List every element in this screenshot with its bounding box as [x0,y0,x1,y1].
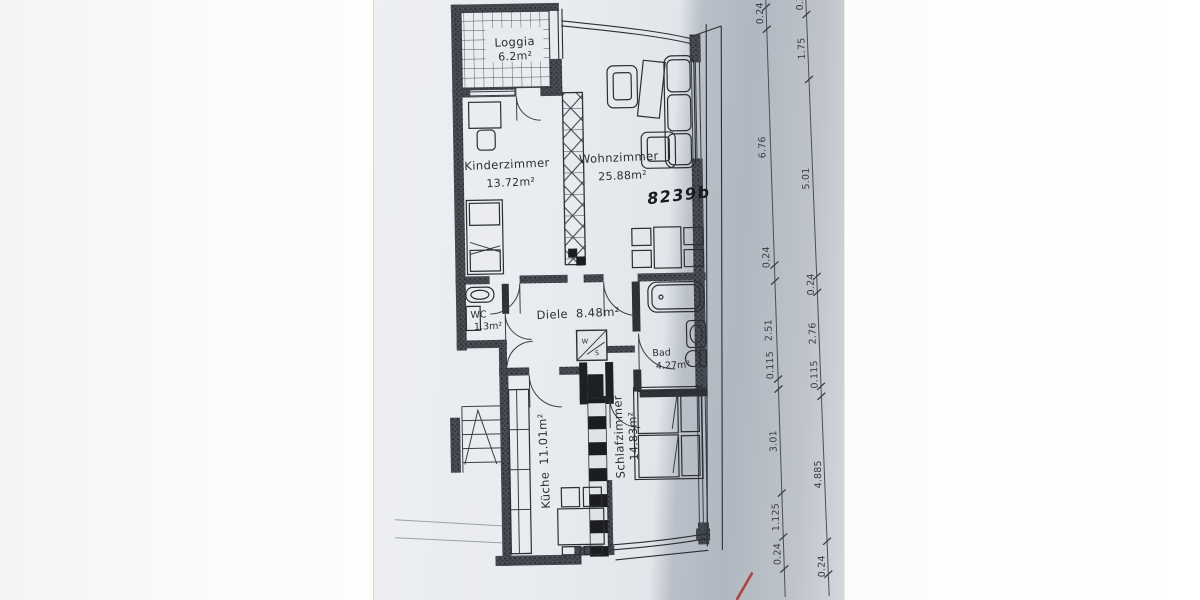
shaft-letter-w: W [582,337,589,345]
diele-area: 8.48m² [576,305,620,321]
dining-chair [632,228,651,245]
kueche-name: Küche [537,471,553,509]
dim-label: 6.76 [757,136,768,158]
desk [469,102,501,129]
installation-shaft: W S [577,330,608,361]
wohnzimmer-area: 25.88m² [598,168,647,183]
schlafzimmer-area: 14.83m² [626,411,641,460]
building-outline-left [395,518,502,545]
pillow [681,435,700,475]
kitchen-chair [561,488,579,507]
stairwell [393,406,502,545]
bad-area: 4.27m² [656,360,691,372]
dim-label: 3.01 [768,430,779,452]
dim-label: 0.24 [755,2,766,24]
dim-label: 1.125 [771,503,782,531]
bad-label: Bad [652,347,671,359]
wohnzimmer-label: Wohnzimmer [579,149,659,166]
wc-area: 1.3m² [474,321,503,333]
loggia-label: Loggia [494,34,535,50]
diele-label: Diele8.48m² [536,305,620,323]
right-window-strip-top [691,62,701,158]
kueche-door [529,375,562,408]
dim-label: 0.115 [809,360,820,388]
coffee-table [637,60,665,118]
schlafzimmer-furniture [634,386,704,479]
entrance-door [507,341,533,365]
wc-door [505,313,531,339]
kueche-label: Küche11.01m² [535,413,553,509]
wohnzimmer-top-window [561,19,690,41]
pillow [681,391,700,431]
loggia-area: 6.2m² [498,49,533,63]
dimension-chain-outer: 0.2 1.75 5.01 0.24 2.76 0.115 4.885 0.24 [795,0,833,597]
dim-label: 4.885 [813,460,824,488]
dining-chair [632,250,651,267]
diele-name: Diele [536,307,568,322]
dim-label: 2.76 [807,322,818,344]
schlafzimmer-label: Schlafzimmer [610,395,628,479]
desk-chair [477,130,495,150]
dining-table [654,227,682,268]
wc-label: WC [470,309,487,321]
kinderzimmer-label: Kinderzimmer [464,155,550,173]
kinderzimmer-area: 13.72m² [486,175,535,190]
floorplan-drawing: W S [374,0,844,600]
loggia-door [516,96,540,120]
photo-background: W S [0,0,1200,600]
kueche-area: 11.01m² [535,413,551,465]
dim-label: 1.75 [796,38,807,60]
red-pen-mark [737,574,752,599]
dimension-chain-inner: 0.24 6.76 0.24 2.51 0.115 3.01 1.125 0.2… [755,0,789,597]
wc-washbasin [466,287,494,302]
shaft-letter-s: S [595,349,599,357]
dim-label: 0.24 [761,246,772,268]
child-bed [466,200,503,275]
chimney-shaft [562,92,585,265]
dim-label: 0.24 [806,273,817,295]
dim-label: 5.01 [801,167,812,189]
dim-label: 2.51 [763,319,774,341]
kitchen-counter [509,389,532,553]
loggia-railing [558,9,563,59]
dim-label: 0.24 [772,543,783,565]
stair-direction-line [464,410,497,465]
schlafzimmer-bottom-window [610,533,708,545]
dim-label: 0.2 [795,0,806,11]
dim-label: 0.115 [765,351,776,379]
dim-label: 0.24 [816,555,827,577]
scanned-floorplan-paper: W S [373,0,845,600]
armchair-1 [607,65,638,108]
